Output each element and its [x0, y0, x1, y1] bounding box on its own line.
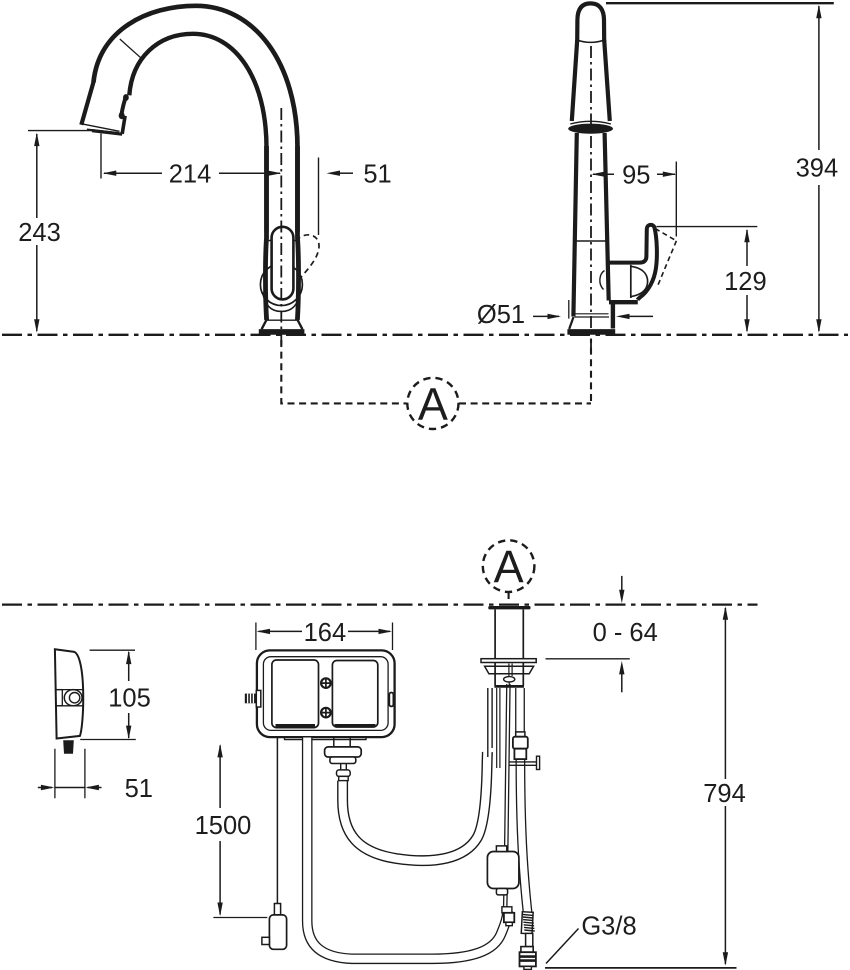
svg-text:0 - 64: 0 - 64 — [593, 619, 658, 647]
svg-text:51: 51 — [125, 775, 153, 803]
svg-text:A: A — [418, 379, 448, 430]
svg-text:243: 243 — [18, 219, 61, 247]
svg-text:794: 794 — [703, 780, 746, 808]
svg-text:105: 105 — [108, 685, 151, 713]
svg-text:Ø51: Ø51 — [477, 301, 525, 329]
svg-text:164: 164 — [304, 619, 347, 647]
svg-text:95: 95 — [622, 162, 650, 190]
svg-text:214: 214 — [169, 161, 212, 189]
svg-text:G3/8: G3/8 — [581, 913, 636, 941]
svg-text:51: 51 — [363, 161, 391, 189]
svg-text:129: 129 — [724, 268, 767, 296]
svg-text:A: A — [494, 541, 524, 592]
svg-text:1500: 1500 — [195, 812, 252, 840]
svg-text:394: 394 — [796, 154, 839, 182]
